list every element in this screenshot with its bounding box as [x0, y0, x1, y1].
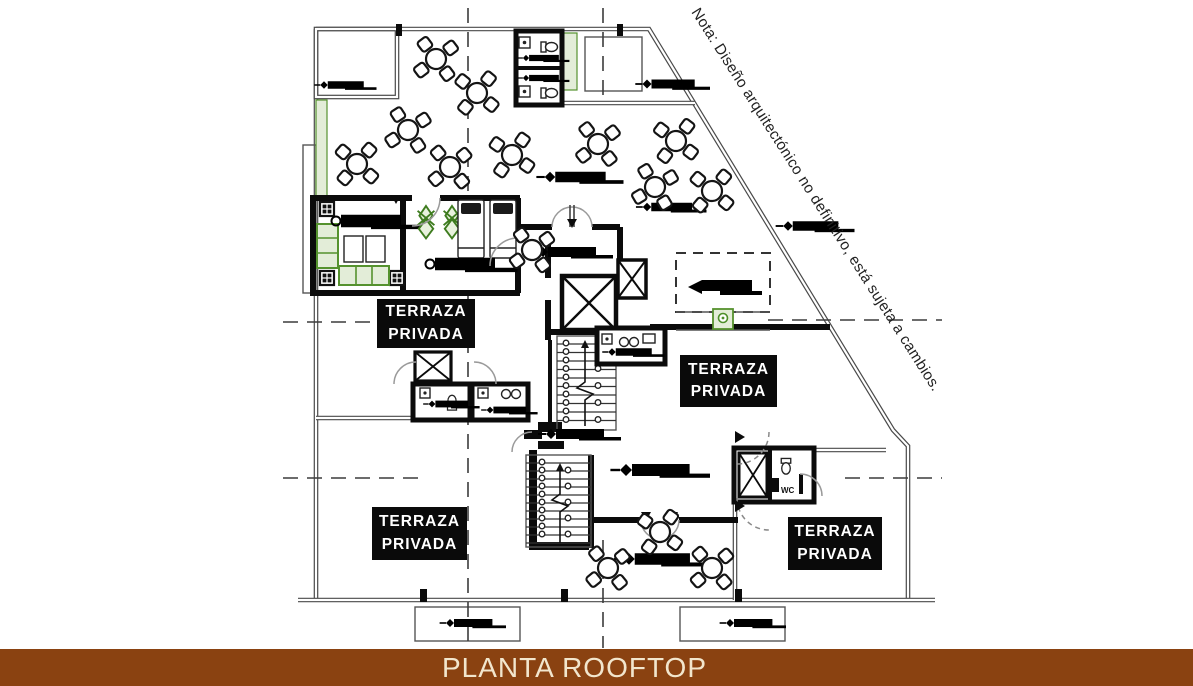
table-icon — [334, 141, 380, 187]
bathroom-core — [597, 328, 665, 364]
table-icon — [344, 236, 363, 262]
bathrooms-middle — [413, 384, 538, 420]
table-icon — [412, 35, 461, 84]
column-icon — [320, 202, 334, 216]
column-icon — [390, 271, 404, 285]
table-icon — [574, 120, 622, 168]
sofa-icon — [339, 266, 389, 285]
sofa-icon — [317, 224, 338, 268]
terraza-privada-label-1: TERRAZA PRIVADA — [377, 299, 475, 348]
label-bar — [426, 258, 518, 272]
wc-room-label: WC — [781, 486, 795, 495]
table-icon — [366, 236, 385, 262]
shower-icon — [713, 309, 733, 329]
terraza-privada-label-2: TERRAZA PRIVADA — [680, 355, 777, 407]
banner-title: PLANTA ROOFTOP — [442, 652, 707, 684]
lounger-icon — [490, 200, 516, 258]
wc-room: WC — [734, 448, 822, 502]
planta-banner: PLANTA ROOFTOP — [0, 649, 1193, 686]
floor-plan-page: WC — [0, 0, 1193, 686]
table-icon — [652, 117, 701, 166]
terraza-privada-label-3: TERRAZA PRIVADA — [372, 507, 467, 560]
table-icon — [453, 69, 500, 116]
terraza-privada-label-4: TERRAZA PRIVADA — [788, 517, 882, 570]
column-icon — [320, 271, 334, 285]
floor-plan-svg: WC — [0, 0, 1193, 649]
table-icon — [383, 105, 434, 156]
table-icon — [584, 544, 631, 591]
lounger-icon — [458, 200, 484, 258]
daybed-room — [418, 200, 518, 272]
table-icon — [635, 507, 684, 556]
label-bar — [332, 215, 424, 229]
roof-opening — [585, 37, 642, 91]
table-icon — [487, 130, 537, 180]
dashed-room — [676, 253, 770, 330]
lounge-room — [317, 202, 424, 285]
bathroom-top — [516, 31, 569, 105]
table-icon — [689, 168, 736, 215]
table-icon — [689, 545, 735, 591]
table-icon — [427, 144, 474, 191]
